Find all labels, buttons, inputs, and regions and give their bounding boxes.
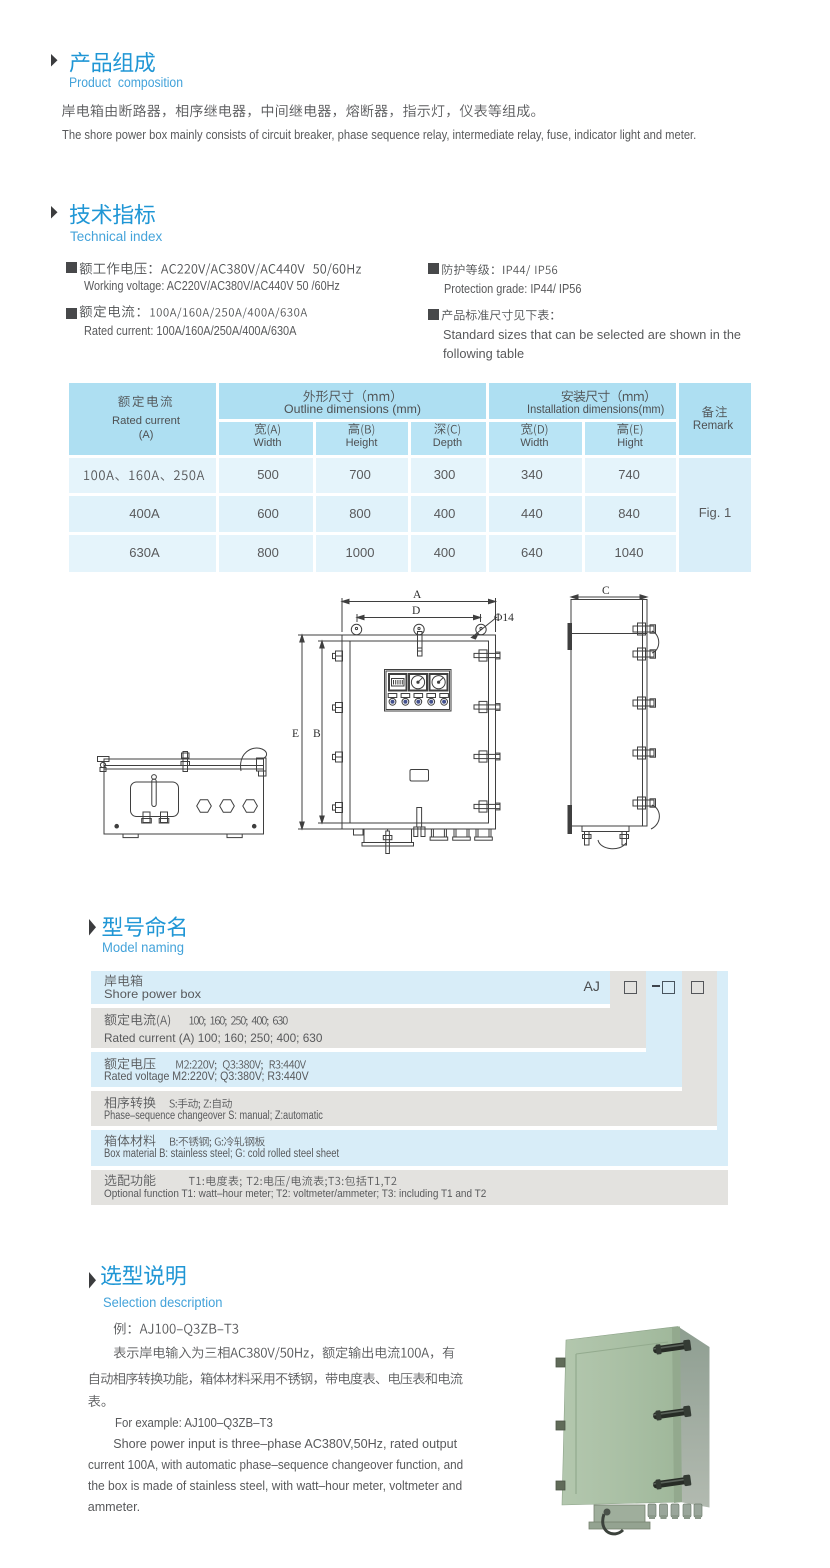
svg-text:E: E [292,728,299,740]
svg-text:Φ14: Φ14 [494,612,514,624]
svg-text:D: D [412,605,420,617]
svg-text:A: A [413,589,422,601]
svg-text:C: C [602,585,610,597]
svg-text:B: B [313,728,321,740]
